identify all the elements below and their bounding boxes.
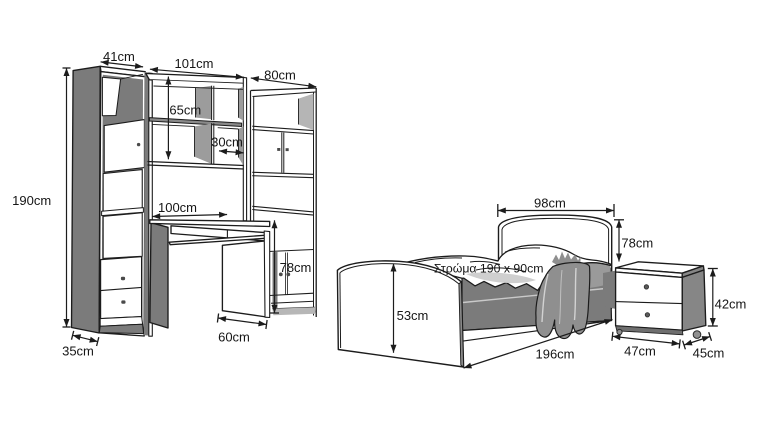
svg-text:80cm: 80cm <box>264 68 296 83</box>
svg-text:35cm: 35cm <box>62 344 94 359</box>
svg-text:41cm: 41cm <box>103 49 135 64</box>
svg-text:98cm: 98cm <box>534 196 566 211</box>
svg-text:190cm: 190cm <box>12 193 51 208</box>
svg-text:45cm: 45cm <box>693 346 725 361</box>
svg-text:60cm: 60cm <box>218 330 250 345</box>
svg-text:47cm: 47cm <box>624 344 656 359</box>
svg-text:101cm: 101cm <box>174 56 213 71</box>
svg-text:78cm: 78cm <box>280 260 312 275</box>
svg-text:30cm: 30cm <box>211 135 243 150</box>
svg-text:53cm: 53cm <box>397 308 429 323</box>
svg-text:196cm: 196cm <box>535 347 574 362</box>
svg-text:42cm: 42cm <box>715 296 747 311</box>
svg-text:100cm: 100cm <box>158 200 197 215</box>
svg-text:Στρώμα 190 x 90cm: Στρώμα 190 x 90cm <box>434 262 544 276</box>
svg-text:78cm: 78cm <box>621 236 653 251</box>
svg-text:65cm: 65cm <box>169 102 201 117</box>
